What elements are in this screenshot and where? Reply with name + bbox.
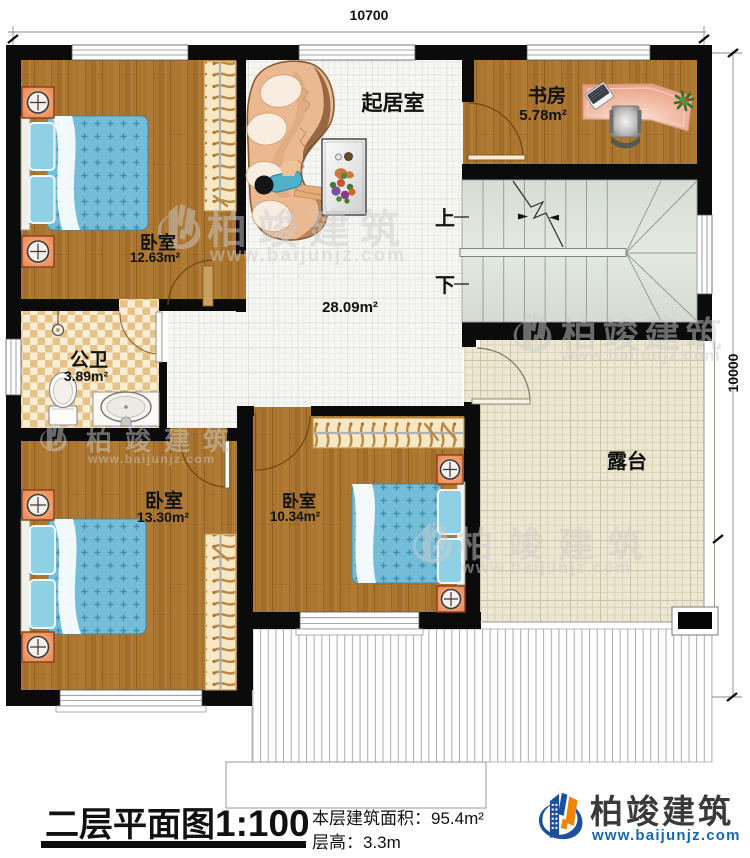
svg-text:12.63m²: 12.63m²: [130, 250, 181, 265]
svg-text:二层平面图1:100: 二层平面图1:100: [45, 803, 310, 844]
svg-text:13.30m²: 13.30m²: [137, 509, 189, 525]
svg-text:上: 上: [435, 207, 455, 230]
svg-text:起居室: 起居室: [361, 91, 425, 115]
svg-text:28.09m²: 28.09m²: [322, 299, 378, 316]
svg-text:层高：3.3m: 层高：3.3m: [312, 833, 401, 852]
svg-text:卧室: 卧室: [282, 491, 316, 511]
svg-text:10000: 10000: [725, 353, 741, 392]
svg-text:www.baijunjz.com: www.baijunjz.com: [209, 245, 406, 266]
svg-text:www.baijunjz.com: www.baijunjz.com: [460, 558, 632, 577]
svg-text:下: 下: [435, 275, 455, 297]
svg-text:10.34m²: 10.34m²: [270, 509, 321, 524]
svg-text:柏竣建筑: 柏竣建筑: [590, 793, 734, 830]
svg-text:www.baijunjz.com: www.baijunjz.com: [560, 346, 721, 365]
svg-text:书房: 书房: [528, 84, 566, 107]
svg-text:5.78m²: 5.78m²: [519, 107, 567, 124]
svg-text:www.baijunjz.com: www.baijunjz.com: [591, 827, 741, 844]
svg-text:露台: 露台: [607, 449, 647, 473]
svg-text:3.89m²: 3.89m²: [64, 368, 109, 384]
svg-text:本层建筑面积：95.4m²: 本层建筑面积：95.4m²: [312, 809, 484, 828]
svg-text:10700: 10700: [350, 7, 389, 23]
svg-text:www.baijunjz.com: www.baijunjz.com: [87, 452, 216, 466]
